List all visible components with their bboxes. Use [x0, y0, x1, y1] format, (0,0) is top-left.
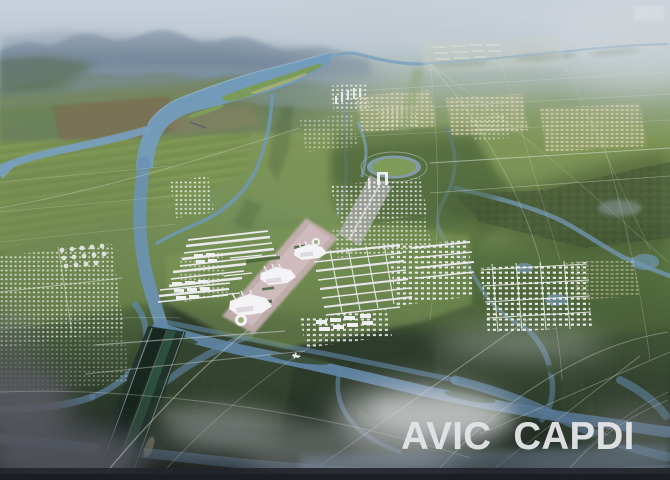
svg-text:AVIC CAPDI: AVIC CAPDI [401, 415, 635, 458]
